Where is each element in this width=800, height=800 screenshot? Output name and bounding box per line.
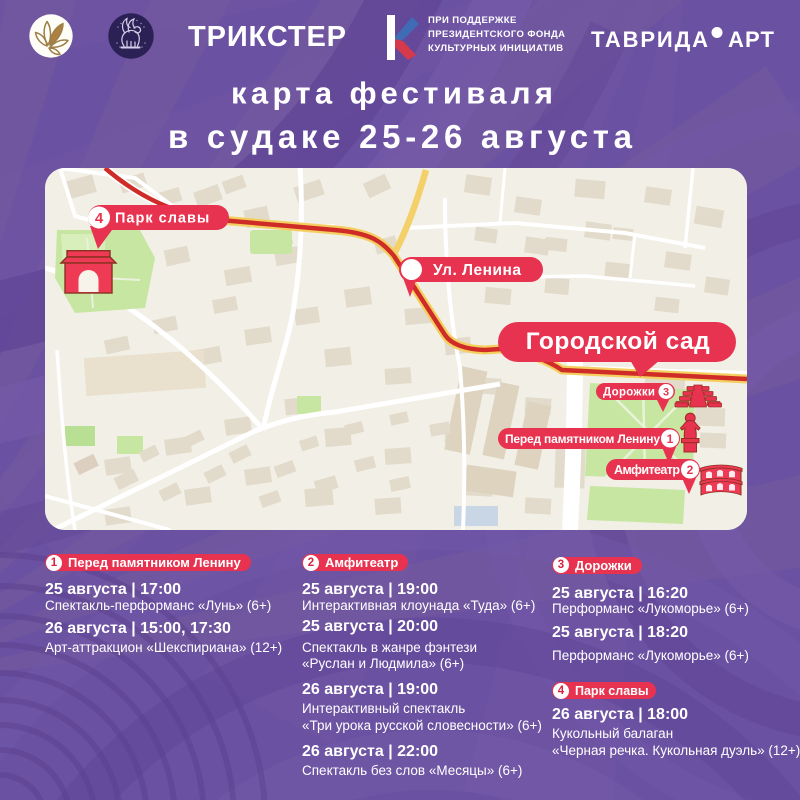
svg-text:карта фестиваля: карта фестиваля: [231, 76, 553, 111]
svg-text:ТРИКСТЕР: ТРИКСТЕР: [188, 21, 346, 52]
svg-text:Амфитеатр: Амфитеатр: [614, 463, 680, 477]
svg-text:Городской сад: Городской сад: [526, 328, 710, 355]
svg-text:Парк славы: Парк славы: [115, 211, 210, 227]
svg-text:Ул. Ленина: Ул. Ленина: [433, 262, 522, 279]
svg-text:2: 2: [687, 463, 694, 477]
svg-text:АРТ: АРТ: [728, 27, 775, 52]
svg-text:Перед памятником Ленину: Перед памятником Ленину: [505, 432, 660, 446]
svg-text:ТАВРИДА: ТАВРИДА: [591, 27, 708, 52]
svg-text:4: 4: [95, 210, 104, 227]
svg-text:в судаке 25-26 августа: в судаке 25-26 августа: [168, 118, 633, 155]
svg-text:1: 1: [667, 432, 674, 446]
svg-text:Дорожки: Дорожки: [603, 387, 655, 399]
svg-text:3: 3: [663, 387, 669, 399]
